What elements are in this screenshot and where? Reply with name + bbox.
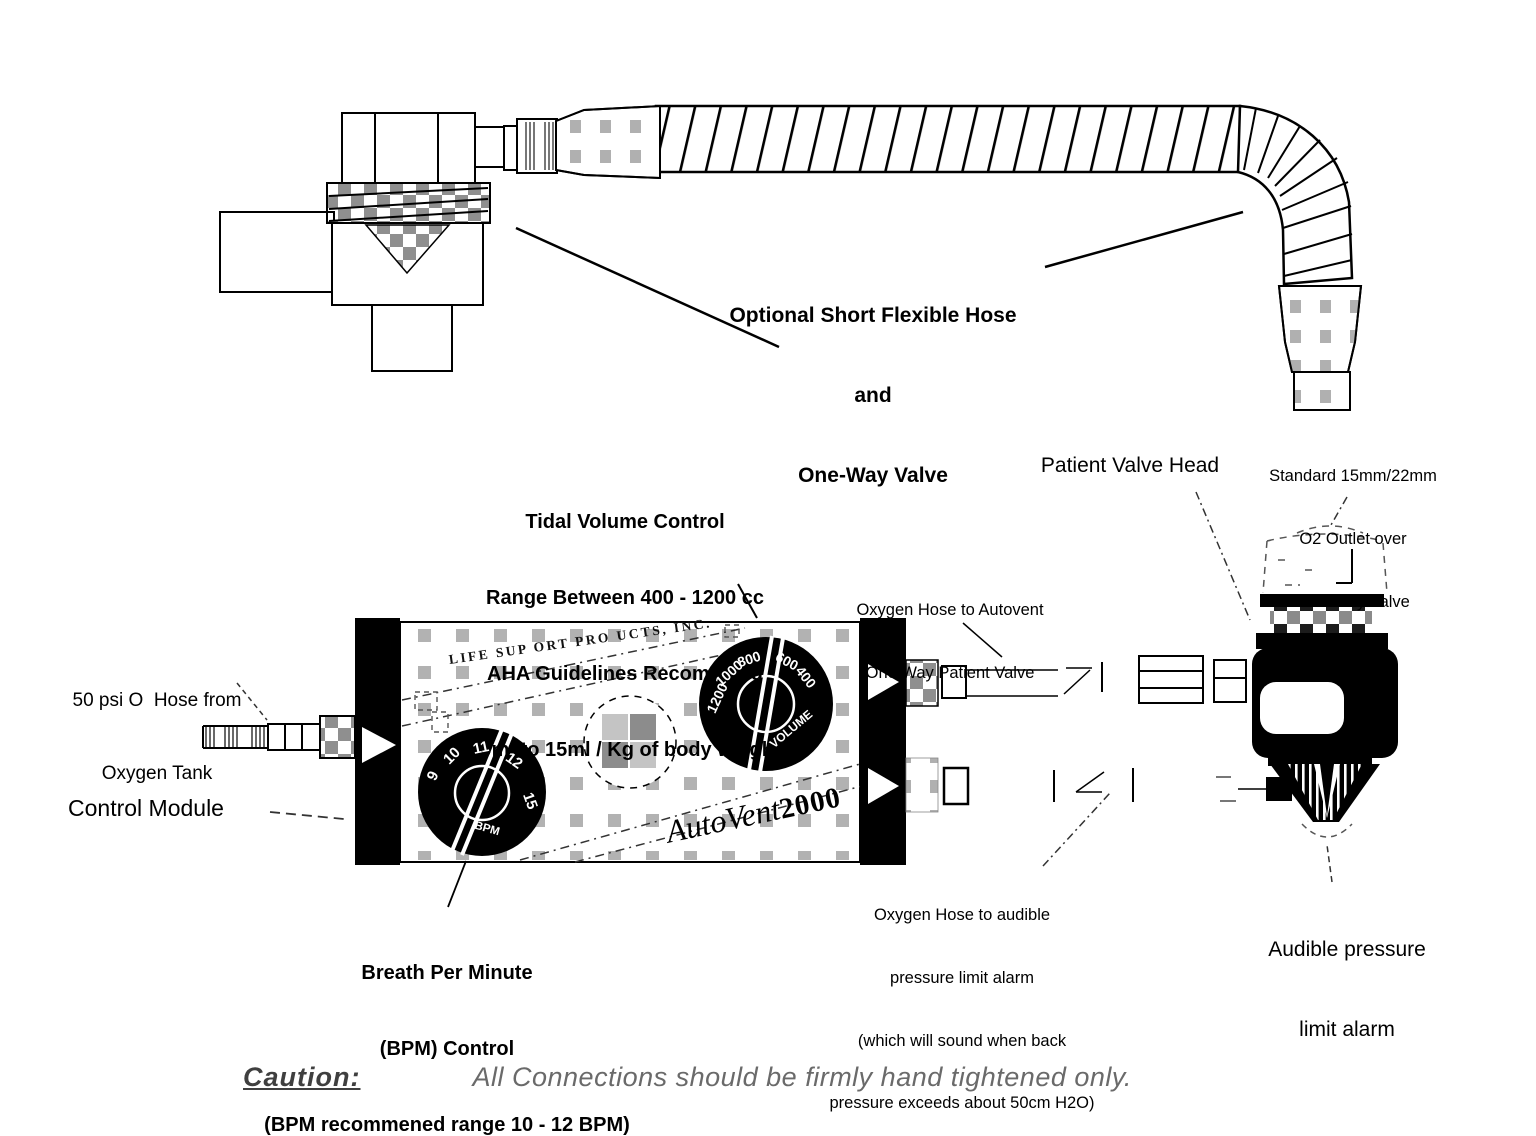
label-audible-alarm: Audible pressure limit alarm xyxy=(1268,884,1426,1071)
label-line: Oxygen Hose to Autovent xyxy=(856,600,1043,621)
label-standard-outlet: Standard 15mm/22mm O2 Outlet over One-Wa… xyxy=(1269,424,1437,634)
label-line: One-Way Valve xyxy=(1269,592,1437,613)
label-control-module: Control Module xyxy=(68,794,224,823)
label-line: Range Between 400 - 1200 cc xyxy=(469,586,780,611)
caution-note: Caution:All Connections should be firmly… xyxy=(228,1026,1132,1095)
label-50psi-hose: 50 psi O Hose from Oxygen Tank xyxy=(73,641,242,810)
label-line: Oxygen Tank xyxy=(73,762,242,786)
label-line: limit alarm xyxy=(1268,1017,1426,1044)
label-line: One Way Patient Valve xyxy=(856,663,1043,684)
label-line: (BPM recommened range 10 - 12 BPM) xyxy=(264,1113,630,1136)
label-line: O2 Outlet over xyxy=(1269,529,1437,550)
label-line: and xyxy=(729,383,1016,410)
label-oxygen-hose-patient-valve: Oxygen Hose to Autovent One Way Patient … xyxy=(856,558,1043,705)
label-line: pressure limit alarm xyxy=(829,968,1094,989)
hose-end-connector-graphic xyxy=(1279,286,1361,410)
label-line: Tidal Volume Control xyxy=(469,510,780,535)
label-patient-valve-head: Patient Valve Head xyxy=(1041,453,1219,480)
bpm-dial-mark: 11 xyxy=(471,738,490,758)
label-line: Audible pressure xyxy=(1268,937,1426,964)
label-bpm-control: Breath Per Minute (BPM) Control (BPM rec… xyxy=(264,910,630,1136)
autovent-diagram-page: Optional Short Flexible Hose and One-Way… xyxy=(0,0,1536,1136)
caution-text: All Connections should be firmly hand ti… xyxy=(473,1062,1132,1092)
hose-fittings-graphic xyxy=(504,106,660,178)
label-line: Breath Per Minute xyxy=(264,961,630,986)
label-line: pressure exceeds about 50cm H2O) xyxy=(829,1093,1094,1114)
label-line: Standard 15mm/22mm xyxy=(1269,466,1437,487)
label-line: 50 psi O Hose from xyxy=(73,689,242,713)
one-way-valve-assembly-graphic xyxy=(220,113,505,371)
alarm-hose-graphic xyxy=(906,758,1266,812)
caution-heading: Caution: xyxy=(243,1062,360,1092)
label-tidal-volume-control: Tidal Volume Control Range Between 400 -… xyxy=(469,459,780,789)
label-line: Oxygen Hose to audible xyxy=(829,905,1094,926)
label-line: Optional Short Flexible Hose xyxy=(729,303,1016,330)
